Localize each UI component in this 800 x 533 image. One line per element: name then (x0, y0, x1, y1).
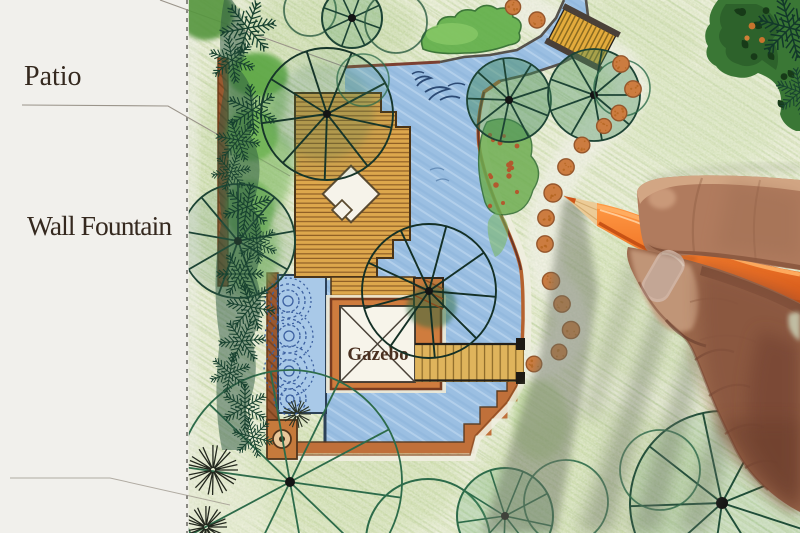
svg-text:Wall Fountain: Wall Fountain (27, 210, 172, 241)
svg-text:Patio: Patio (24, 61, 82, 92)
svg-text:Gazebo: Gazebo (347, 344, 408, 365)
